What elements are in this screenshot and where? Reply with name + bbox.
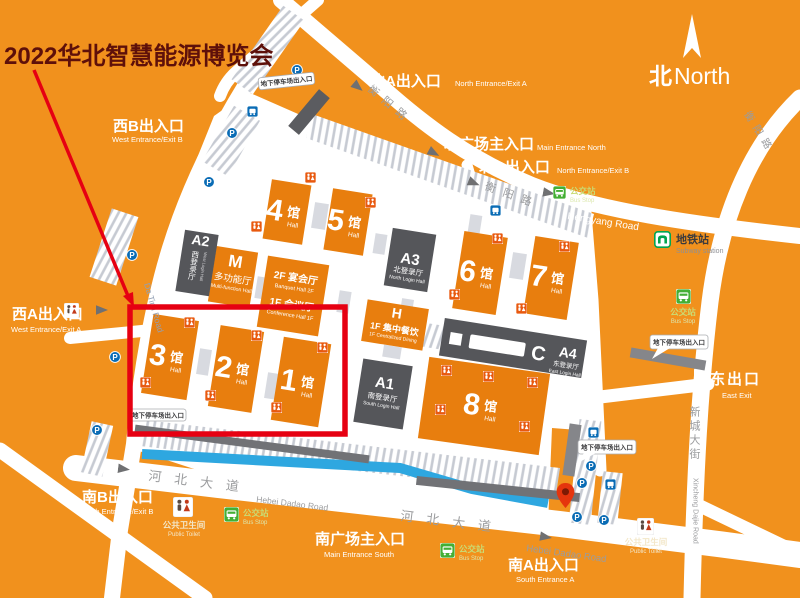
bus-stop-label-en: Bus Stop: [570, 198, 595, 204]
bus-stop-label-zh: 公交站: [670, 307, 696, 317]
restroom-icon: [492, 233, 503, 244]
entrance-north-main-en: Main Entrance North: [537, 143, 606, 152]
bus-stop-label-zh: 公交站: [243, 508, 269, 518]
entrance-south-a-zh: 南A出入口: [508, 556, 579, 574]
entrance-north-b-en: North Entrance/Exit B: [557, 166, 629, 175]
subway-label-zh: 地铁站: [676, 232, 709, 246]
parking-icon: [599, 515, 610, 526]
entrance-south-a-en: South Entrance A: [516, 575, 574, 584]
parking-gate-label: 地下停车场出入口: [132, 411, 184, 420]
parking-gate-tag-west: 地下停车场出入口: [130, 409, 186, 421]
restroom-icon: [365, 197, 376, 208]
restroom-icon: [559, 241, 570, 252]
subway-icon: [655, 232, 670, 247]
restroom-icon: [449, 289, 460, 300]
restroom-icon: [441, 365, 452, 376]
parking-icon: [110, 352, 121, 363]
bus-stop-label-en: Bus Stop: [243, 520, 268, 526]
building-a1-code: A1: [374, 374, 396, 394]
entrance-north-a-zh: 北A出入口: [370, 72, 441, 90]
bus-stop-icon: [553, 186, 566, 199]
hall-6-unit: 馆: [479, 265, 494, 282]
bus-stop-icon: [440, 543, 455, 558]
public-toilet-icon: [173, 497, 193, 517]
restroom-icon: [251, 330, 262, 341]
subway-label-en: Subway station: [676, 248, 724, 255]
entrance-west-b-zh: 西B出入口: [113, 117, 184, 135]
entrance-west-a-en: West Entrance/Exit A: [11, 325, 81, 334]
building-m-code: M: [227, 251, 244, 272]
restroom-icon: [317, 342, 328, 353]
parking-icon: [92, 425, 103, 436]
expo-map-page: P: [0, 0, 800, 598]
hall-3-unit: 馆: [169, 349, 184, 366]
public-toilet-label-zh: 公共卫生间: [163, 520, 206, 530]
compass-label-zh: 北: [649, 63, 672, 89]
hall-8-unit: 馆: [483, 398, 498, 415]
restroom-icon: [519, 421, 530, 432]
parking-gate-label: 地下停车场出入口: [653, 338, 705, 347]
bus-stop-label-zh: 公交站: [570, 186, 596, 196]
building-a2-code: A2: [191, 231, 211, 250]
hall-1-unit: 馆: [300, 374, 315, 391]
bus-stop-icon: [676, 289, 691, 304]
parking-icon: [227, 128, 238, 139]
banquet-conference-hall: 2F 宴会厅 Banquet Hall 2F 1F 会议厅 Conference…: [257, 256, 329, 337]
entrance-south-main-en: Main Entrance South: [324, 550, 394, 559]
bus-stop-icon: [224, 507, 239, 522]
parking-icon: [577, 478, 588, 489]
restroom-icon: [305, 172, 316, 183]
bus-stop-label-en: Bus Stop: [671, 319, 696, 325]
public-toilet-label-en: Public Toilet: [168, 532, 200, 538]
login-hall-a3: A3 北登录厅 North Login Hall: [384, 228, 437, 292]
parking-icon: [572, 512, 583, 523]
page-title: 2022华北智慧能源博览会: [4, 42, 273, 70]
parking-icon: [586, 461, 597, 472]
restroom-icon: [140, 377, 151, 388]
restroom-icon: [205, 390, 216, 401]
bus-sign-icon: [247, 106, 258, 117]
restroom-icon: [483, 371, 494, 382]
parking-icon: [204, 177, 215, 188]
hall-2-unit: 馆: [235, 361, 250, 378]
restroom-icon: [251, 221, 262, 232]
parking-icon: [127, 250, 138, 261]
entrance-south-main-zh: 南广场主入口: [315, 530, 405, 548]
entrance-west-a-zh: 西A出入口: [12, 305, 83, 323]
road-label-xincheng-en: Xincheng Dajie Road: [692, 478, 699, 544]
entrance-north-a-en: North Entrance/Exit A: [455, 79, 527, 88]
parking-gate-label: 地下停车场出入口: [581, 443, 633, 452]
login-hall-a1: A1 南登录厅 South Login Hall: [353, 358, 412, 429]
entrance-north-b-zh: 北B出入口: [479, 158, 550, 176]
bus-stop-label-en: Bus Stop: [459, 556, 484, 562]
bus-sign-icon: [490, 205, 501, 216]
entrance-north-main-zh: 北广场主入口: [444, 135, 534, 153]
restroom-icon: [516, 303, 527, 314]
compass-label-en: North: [674, 63, 730, 89]
entrance-east-zh: 东出口: [710, 370, 761, 388]
hall-7-unit: 馆: [550, 270, 565, 287]
public-toilet-icon: [637, 518, 654, 535]
hall-5-unit: 馆: [347, 214, 362, 231]
hall-4-unit: 馆: [286, 204, 301, 221]
entrance-west-b-en: West Entrance/Exit B: [112, 135, 183, 144]
restroom-icon: [527, 377, 538, 388]
entrance-south-b-zh: 南B出入口: [82, 488, 153, 506]
building-a4-code: A4: [558, 343, 578, 362]
public-toilet-label-en: Public Toilet: [630, 549, 662, 555]
bus-sign-icon: [588, 427, 599, 438]
bus-stop-label-zh: 公交站: [459, 544, 485, 554]
restroom-icon: [184, 317, 195, 328]
public-toilet-label-zh: 公共卫生间: [625, 537, 668, 547]
bus-sign-icon: [605, 479, 616, 490]
entrance-east-en: East Exit: [722, 391, 753, 400]
road-west-access: [70, 330, 152, 338]
entrance-south-b-en: South Entrance/Exit B: [80, 507, 153, 516]
restroom-icon: [271, 402, 282, 413]
restroom-icon: [435, 404, 446, 415]
road-label-xincheng-zh: 新城大街: [688, 405, 701, 462]
expo-map: P: [0, 0, 800, 598]
